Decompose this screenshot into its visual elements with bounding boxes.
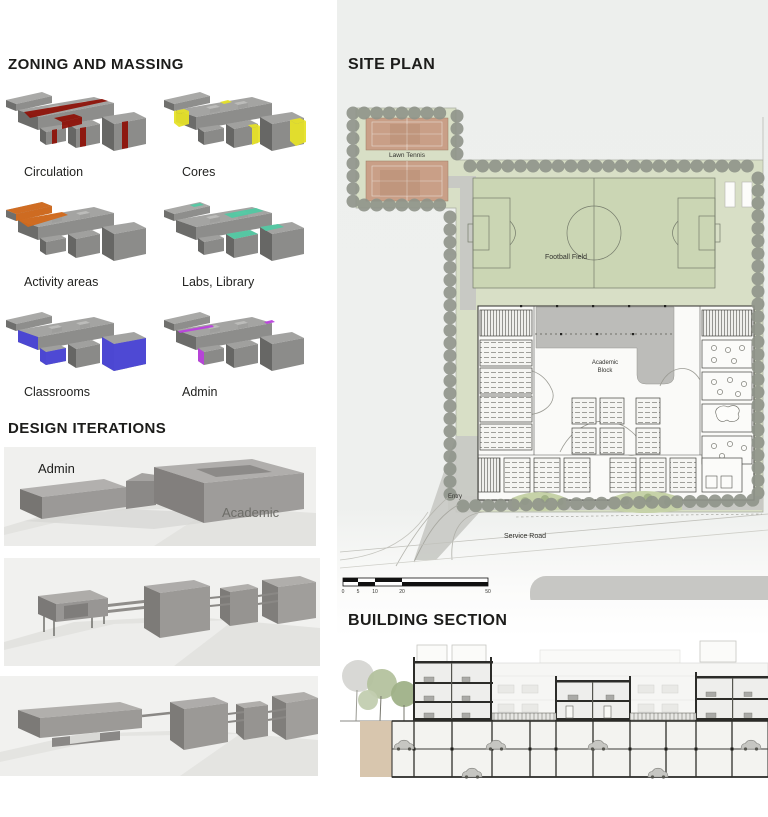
scale-tick-5: 5 bbox=[357, 589, 360, 595]
iterations-title: DESIGN ITERATIONS bbox=[8, 420, 166, 437]
iteration-model-photo-3 bbox=[0, 676, 318, 776]
zoning-item-classrooms: Classrooms bbox=[2, 304, 158, 408]
massing-diagram-circulation bbox=[2, 84, 158, 164]
zoning-label: Classrooms bbox=[2, 385, 158, 399]
zoning-label: Activity areas bbox=[2, 275, 158, 289]
section-block-2 bbox=[555, 676, 631, 721]
zoning-item-admin: Admin bbox=[160, 304, 316, 408]
zoning-label: Admin bbox=[160, 385, 316, 399]
arcade-strip-1 bbox=[492, 713, 556, 720]
building-section-title: BUILDING SECTION bbox=[348, 612, 507, 630]
building-section-drawing bbox=[340, 640, 768, 817]
zoning-label: Cores bbox=[160, 165, 316, 179]
section-block-1 bbox=[413, 657, 493, 721]
section-block-3 bbox=[695, 672, 768, 721]
scale-tick-10: 10 bbox=[372, 589, 378, 595]
site-plan-svg: Lawn Tennis Football Field bbox=[340, 96, 768, 600]
scale-tick-20: 20 bbox=[399, 589, 405, 595]
entry-label: Entry bbox=[448, 494, 462, 500]
arcade-strip-2 bbox=[630, 713, 696, 720]
service-road-label: Service Road bbox=[504, 533, 546, 540]
model-photo-2-image bbox=[4, 558, 320, 666]
section-trees bbox=[342, 660, 417, 721]
massing-diagram-labs bbox=[160, 194, 316, 274]
section-ground-basement bbox=[340, 721, 768, 779]
model-photo-3-image bbox=[0, 676, 318, 776]
massing-diagram-activity bbox=[2, 194, 158, 274]
iteration-model-photo-2 bbox=[4, 558, 320, 666]
zoning-item-labs: Labs, Library bbox=[160, 194, 316, 298]
scale-tick-0: 0 bbox=[342, 589, 345, 595]
scale-tick-50: 50 bbox=[485, 589, 491, 595]
football-field-label: Football Field bbox=[545, 254, 587, 261]
academic-block-label-1: Academic bbox=[592, 360, 618, 366]
zoning-item-cores: Cores bbox=[160, 84, 316, 188]
iteration-model-photo-1: Admin Academic bbox=[4, 447, 316, 546]
model1-admin-label: Admin bbox=[38, 461, 75, 476]
zoning-label: Circulation bbox=[2, 165, 158, 179]
zoning-item-circulation: Circulation bbox=[2, 84, 158, 188]
academic-block-plan: Academic Block bbox=[478, 305, 754, 500]
site-plan-title: SITE PLAN bbox=[348, 56, 435, 74]
site-plan-drawing: Lawn Tennis Football Field bbox=[340, 96, 768, 600]
massing-diagram-classrooms bbox=[2, 304, 158, 384]
football-field bbox=[468, 178, 720, 288]
zoning-label: Labs, Library bbox=[160, 275, 316, 289]
service-road bbox=[340, 514, 768, 568]
zoning-title: ZONING AND MASSING bbox=[8, 56, 184, 73]
presentation-board: ZONING AND MASSING Circulation bbox=[0, 0, 768, 817]
scale-bar: 0 5 10 20 50 bbox=[342, 578, 491, 595]
academic-block-label-2: Block bbox=[598, 368, 614, 374]
massing-diagram-admin bbox=[160, 304, 316, 384]
paved-band bbox=[530, 576, 768, 600]
model1-academic-label: Academic bbox=[222, 505, 279, 520]
lawn-tennis-label: Lawn Tennis bbox=[389, 152, 426, 159]
building-section-svg bbox=[340, 640, 768, 817]
massing-diagram-cores bbox=[160, 84, 316, 164]
zoning-item-activity: Activity areas bbox=[2, 194, 158, 298]
